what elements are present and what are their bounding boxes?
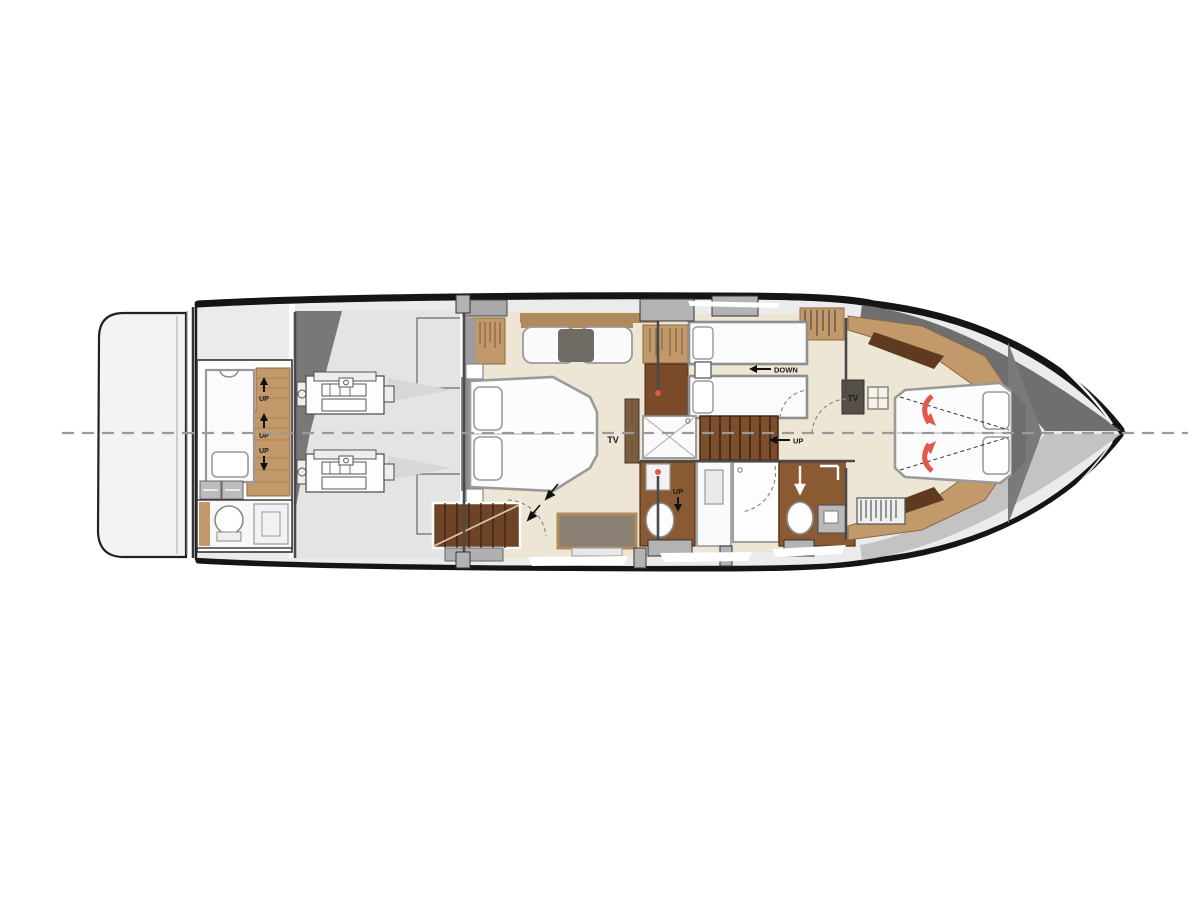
stairs-up-label: UP bbox=[793, 437, 803, 446]
master-cabin: TV bbox=[433, 300, 657, 561]
master-toilet bbox=[646, 503, 674, 537]
yacht-lower-deck-floorplan: UP UP UP bbox=[0, 0, 1200, 900]
vip-table bbox=[868, 387, 888, 409]
twin-pillow-2 bbox=[693, 381, 713, 413]
master-wardrobe bbox=[465, 318, 505, 364]
crew-toilet bbox=[215, 506, 243, 534]
crew-cabinets bbox=[200, 481, 243, 499]
vip-shower bbox=[733, 462, 779, 542]
master-wc: UP bbox=[640, 462, 695, 546]
engine-starboard bbox=[297, 450, 394, 492]
crew-bathroom bbox=[197, 500, 292, 548]
master-nightstand-port bbox=[466, 364, 483, 379]
vip-hanger-rack bbox=[857, 498, 905, 524]
crew-shower bbox=[254, 504, 288, 544]
swim-platform bbox=[98, 313, 186, 557]
crew-up-label-1: UP bbox=[259, 396, 269, 403]
master-tv-label: TV bbox=[607, 435, 619, 445]
master-sofa bbox=[521, 320, 633, 363]
master-pillow-port bbox=[474, 387, 502, 430]
twin-pillow-1 bbox=[693, 327, 713, 359]
vip-bathroom bbox=[697, 462, 855, 546]
crew-cabin: UP UP UP bbox=[197, 360, 292, 552]
crew-up-label-3: UP bbox=[259, 448, 269, 455]
vip-pillow-1 bbox=[983, 392, 1009, 429]
vip-pillow-2 bbox=[983, 437, 1009, 474]
master-pillow-starboard bbox=[474, 437, 502, 480]
master-shower bbox=[643, 416, 696, 458]
floorplan-drawing: UP UP UP bbox=[0, 0, 1200, 900]
vip-sink bbox=[705, 470, 723, 504]
master-tv-cabinet bbox=[625, 399, 639, 463]
vip-toilet bbox=[787, 502, 813, 534]
twin-nightstand bbox=[695, 362, 711, 378]
wc-up-label: UP bbox=[673, 487, 683, 496]
twin-down-label: DOWN bbox=[774, 366, 798, 375]
engine-port bbox=[297, 372, 394, 414]
twin-dresser bbox=[645, 364, 688, 416]
crew-pillow bbox=[212, 452, 248, 477]
vip-tv-label: TV bbox=[848, 394, 859, 403]
